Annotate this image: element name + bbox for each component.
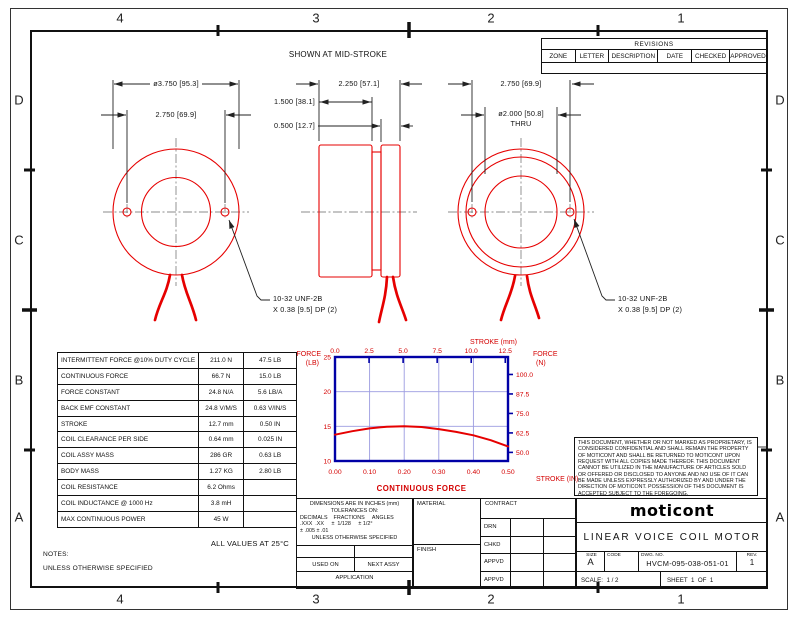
- view-caption: SHOWN AT MID-STROKE: [288, 50, 388, 59]
- revisions-empty-row: [542, 63, 766, 73]
- spec-cell: 45 W: [199, 511, 244, 527]
- tolerance-line1: DIMENSIONS ARE IN INCHES (mm): [297, 501, 412, 508]
- spec-cell: 47.5 LB: [244, 353, 297, 369]
- chart-right-tick: 62.5: [516, 430, 529, 437]
- approval-label: CHKD: [481, 537, 511, 554]
- chart-top-tick: 2.5: [364, 348, 374, 355]
- chart-bottom-tick: 0.30: [432, 469, 445, 476]
- lead-wire: [393, 277, 406, 320]
- chart-top-tick: 0.0: [330, 348, 340, 355]
- motor-body: [319, 145, 372, 277]
- chart-left-tick: 15: [323, 424, 331, 431]
- chart-title: CONTINUOUS FORCE: [377, 484, 467, 493]
- tap-note-left-2: X 0.38 [9.5] DP (2): [272, 306, 338, 314]
- tap-note-left-1: 10-32 UNF-2B: [272, 295, 323, 303]
- revisions-col-header: APPROVED: [730, 50, 766, 62]
- rear-view: [448, 138, 594, 320]
- continuous-force-curve: [335, 426, 508, 446]
- chart-top-tick: 10.0: [465, 348, 478, 355]
- spec-row: COIL RESISTANCE6.2 Ohms: [58, 480, 297, 496]
- notes-label: NOTES:: [42, 551, 70, 559]
- spec-cell: 0.64 mm: [199, 432, 244, 448]
- chart-right-axis-title: FORCE: [533, 351, 558, 358]
- chart-left-tick: 10: [323, 459, 331, 466]
- lead-wire: [155, 275, 170, 320]
- spec-row: BODY MASS1.27 KG2.80 LB: [58, 464, 297, 480]
- spec-cell: 6.2 Ohms: [199, 480, 244, 496]
- revisions-table: REVISIONS ZONELETTERDESCRIPTIONDATECHECK…: [541, 38, 767, 74]
- used-on-empty-row: [297, 545, 412, 557]
- dim-rear-bore: ø2.000 [50.8]: [497, 110, 545, 118]
- spec-cell: 12.7 mm: [199, 416, 244, 432]
- svg-text:(N): (N): [536, 360, 546, 367]
- approval-label: DRN: [481, 519, 511, 536]
- spec-cell: 286 GR: [199, 448, 244, 464]
- spec-row: MAX CONTINUOUS POWER45 W: [58, 511, 297, 527]
- chart-right-tick: 100.0: [516, 372, 533, 379]
- revisions-col-header: CHECKED: [692, 50, 730, 62]
- spec-row: COIL CLEARANCE PER SIDE0.64 mm0.025 IN: [58, 432, 297, 448]
- spec-cell: 66.7 N: [199, 368, 244, 384]
- proprietary-note: THIS DOCUMENT, WHETHER OR NOT MARKED AS …: [574, 437, 758, 496]
- dwg-no-value: HVCM-095-038-051-01: [639, 559, 736, 568]
- spec-row: FORCE CONSTANT24.8 N/A5.6 LB/A: [58, 384, 297, 400]
- revisions-col-header: LETTER: [576, 50, 610, 62]
- used-on-label: USED ON: [297, 558, 355, 572]
- spec-cell: COIL RESISTANCE: [58, 480, 199, 496]
- spec-table: INTERMITTENT FORCE @10% DUTY CYCLE211.0 …: [57, 352, 297, 528]
- lead-wire: [182, 275, 196, 320]
- contract-cell: CONTRACT: [481, 499, 575, 519]
- code-label: CODE: [605, 552, 638, 558]
- sheet-cell: SHEET 1 OF 1: [661, 572, 767, 588]
- spec-cell: INTERMITTENT FORCE @10% DUTY CYCLE: [58, 353, 199, 369]
- spec-cell: 15.0 LB: [244, 368, 297, 384]
- spec-cell: CONTINUOUS FORCE: [58, 368, 199, 384]
- chart-left-tick: 25: [323, 355, 331, 362]
- spec-row: CONTINUOUS FORCE66.7 N15.0 LB: [58, 368, 297, 384]
- spec-cell: 24.8 V/M/S: [199, 400, 244, 416]
- approval-block: MATERIAL FINISH CONTRACT DRNCHKDAPPVDAPP…: [413, 498, 576, 589]
- dim-front-od: ø3.750 [95.3]: [152, 80, 200, 88]
- spec-cell: 0.025 IN: [244, 432, 297, 448]
- material-cell: MATERIAL: [414, 499, 480, 545]
- chart-bottom-tick: 0.20: [398, 469, 411, 476]
- tolerance-line5: ± .005 ± .01: [297, 528, 412, 535]
- notes-unless: UNLESS OTHERWISE SPECIFIED: [42, 565, 154, 573]
- leader-right: [574, 219, 615, 300]
- front-view: [103, 138, 249, 320]
- size-value: A: [577, 558, 604, 568]
- finish-cell: FINISH: [414, 545, 480, 588]
- approval-row: CHKD: [481, 537, 575, 555]
- chart-left-axis-title: FORCE: [297, 351, 322, 358]
- spec-cell: BODY MASS: [58, 464, 199, 480]
- used-on-row: USED ON NEXT ASSY: [297, 557, 412, 571]
- chart-bottom-tick: 0.50: [501, 469, 514, 476]
- lead-wire: [527, 276, 539, 318]
- tolerance-text: DIMENSIONS ARE IN INCHES (mm) TOLERANCES…: [297, 499, 412, 545]
- chart-top-tick: 12.5: [499, 348, 512, 355]
- force-stroke-chart: 0.02.55.07.510.012.50.000.100.200.300.40…: [297, 339, 579, 493]
- chart-right-tick: 75.0: [516, 411, 529, 418]
- approval-row: DRN: [481, 519, 575, 537]
- spec-cell: MAX CONTINUOUS POWER: [58, 511, 199, 527]
- leader-left: [229, 220, 270, 300]
- spec-row: INTERMITTENT FORCE @10% DUTY CYCLE211.0 …: [58, 353, 297, 369]
- chart-top-tick: 5.0: [398, 348, 408, 355]
- spec-row: COIL ASSY MASS286 GR0.63 LB: [58, 448, 297, 464]
- spec-row: BACK EMF CONSTANT24.8 V/M/S0.63 V/IN/S: [58, 400, 297, 416]
- coil-gap: [372, 152, 381, 270]
- drawing-sheet: 44332211DDCCBBAA: [0, 0, 800, 618]
- spec-cell: [244, 480, 297, 496]
- spec-cell: BACK EMF CONSTANT: [58, 400, 199, 416]
- tolerance-line3: DECIMALS FRACTIONS ANGLES: [297, 515, 412, 522]
- chart-right-tick: 87.5: [516, 391, 529, 398]
- chart-top-axis-title: STROKE (mm): [470, 339, 517, 346]
- spec-cell: [244, 511, 297, 527]
- tolerance-line2: TOLERANCES ON:: [297, 508, 412, 515]
- chart-bottom-tick: 0.10: [363, 469, 376, 476]
- dwg-no-label: DWG. NO.: [639, 552, 736, 558]
- spec-cell: STROKE: [58, 416, 199, 432]
- spec-cell: 2.80 LB: [244, 464, 297, 480]
- next-assy-label: NEXT ASSY: [355, 558, 412, 572]
- approval-row: APPVD: [481, 572, 575, 589]
- tap-note-right-2: X 0.38 [9.5] DP (2): [617, 306, 683, 314]
- revisions-col-header: ZONE: [542, 50, 576, 62]
- revisions-col-header: DESCRIPTION: [609, 50, 658, 62]
- company-logo: moticont: [630, 501, 714, 520]
- all-values-note: ALL VALUES AT 25°C: [210, 540, 290, 549]
- approval-label: APPVD: [481, 554, 511, 571]
- spec-cell: COIL ASSY MASS: [58, 448, 199, 464]
- spec-cell: 24.8 N/A: [199, 384, 244, 400]
- dim-side-overall: 2.250 [57.1]: [338, 80, 381, 88]
- chart-bottom-axis-title: STROKE (IN): [536, 476, 578, 483]
- drawing-title: LINEAR VOICE COIL MOTOR: [577, 523, 767, 552]
- revisions-columns: ZONELETTERDESCRIPTIONDATECHECKEDAPPROVED: [542, 50, 766, 63]
- spec-cell: 5.6 LB/A: [244, 384, 297, 400]
- coil-plate: [381, 145, 400, 277]
- title-block: moticont LINEAR VOICE COIL MOTOR SIZE A …: [576, 498, 768, 589]
- rev-value: 1: [737, 559, 767, 567]
- spec-cell: FORCE CONSTANT: [58, 384, 199, 400]
- chart-left-tick: 20: [323, 389, 331, 396]
- spec-cell: 0.63 V/IN/S: [244, 400, 297, 416]
- revisions-col-header: DATE: [658, 50, 692, 62]
- tap-note-right-1: 10-32 UNF-2B: [617, 295, 668, 303]
- spec-cell: [244, 496, 297, 512]
- spec-cell: 3.8 mH: [199, 496, 244, 512]
- approval-row: APPVD: [481, 554, 575, 572]
- chart-bottom-tick: 0.40: [467, 469, 480, 476]
- chart-bottom-tick: 0.00: [328, 469, 341, 476]
- dim-rear-bore-note: THRU: [509, 120, 532, 128]
- spec-row: COIL INDUCTANCE @ 1000 Hz3.8 mH: [58, 496, 297, 512]
- spec-cell: 211.0 N: [199, 353, 244, 369]
- tolerance-block: DIMENSIONS ARE IN INCHES (mm) TOLERANCES…: [296, 498, 413, 589]
- dim-front-bolt-circle: 2.750 [69.9]: [155, 111, 198, 119]
- dim-side-body: 1.500 [38.1]: [273, 98, 316, 106]
- spec-row: STROKE12.7 mm0.50 IN: [58, 416, 297, 432]
- chart-right-tick: 50.0: [516, 450, 529, 457]
- approval-label: APPVD: [481, 572, 511, 589]
- spec-cell: COIL CLEARANCE PER SIDE: [58, 432, 199, 448]
- application-label: APPLICATION: [297, 571, 412, 585]
- lead-wire: [501, 276, 515, 320]
- dim-side-plate: 0.500 [12.7]: [273, 122, 316, 130]
- chart-top-tick: 7.5: [432, 348, 442, 355]
- spec-cell: 1.27 KG: [199, 464, 244, 480]
- dim-rear-bolt-circle: 2.750 [69.9]: [500, 80, 543, 88]
- revisions-title: REVISIONS: [542, 39, 766, 50]
- spec-cell: 0.50 IN: [244, 416, 297, 432]
- svg-text:(LB): (LB): [306, 360, 319, 367]
- lead-wire: [379, 277, 387, 322]
- scale-cell: SCALE: 1 / 2: [577, 572, 661, 588]
- tolerance-line4: .XXX .XX ± 1/128 ± 1/2°: [297, 521, 412, 528]
- spec-cell: 0.63 LB: [244, 448, 297, 464]
- tolerance-line6: UNLESS OTHERWISE SPECIFIED: [297, 535, 412, 542]
- spec-cell: COIL INDUCTANCE @ 1000 Hz: [58, 496, 199, 512]
